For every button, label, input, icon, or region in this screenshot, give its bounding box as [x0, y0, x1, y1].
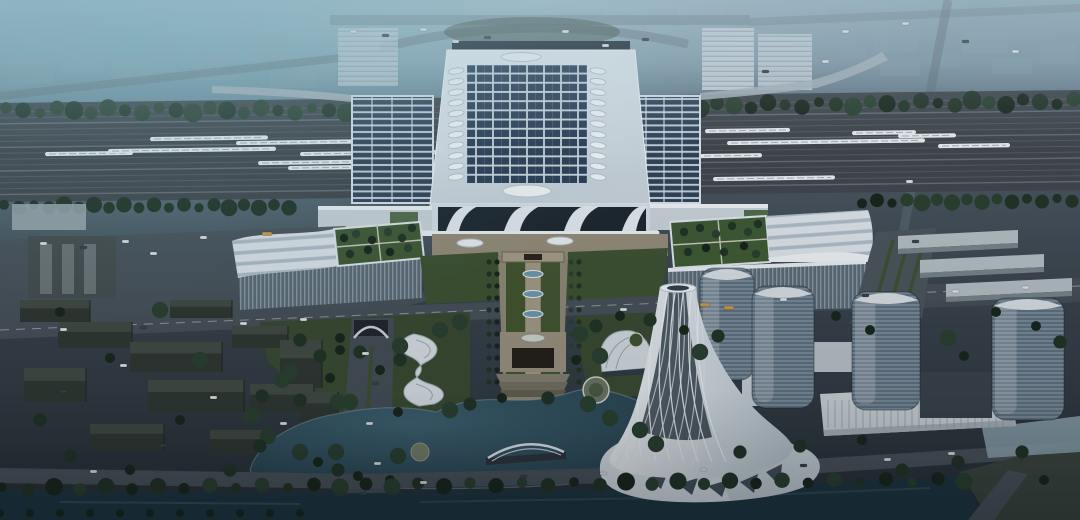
- station-masterplan-rendering: [0, 0, 1080, 520]
- rendering-canvas: [0, 0, 1080, 520]
- vignette: [0, 0, 1080, 520]
